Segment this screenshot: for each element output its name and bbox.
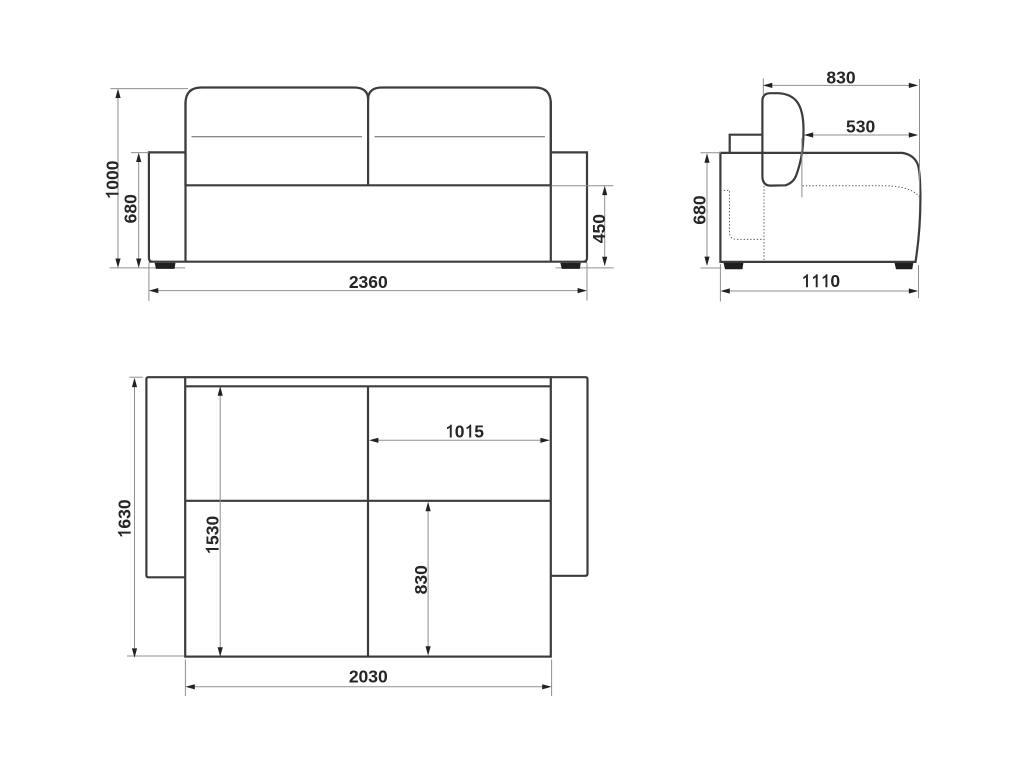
svg-text:2030: 2030 xyxy=(349,666,388,686)
svg-text:0: 0 xyxy=(830,271,840,291)
svg-text:530: 530 xyxy=(846,116,875,136)
svg-text:5: 5 xyxy=(474,422,484,442)
svg-text:680: 680 xyxy=(690,195,710,224)
svg-text:680: 680 xyxy=(120,194,140,223)
svg-text:530: 530 xyxy=(203,516,223,545)
svg-text:450: 450 xyxy=(589,214,609,243)
svg-text:2360: 2360 xyxy=(349,272,388,292)
svg-text:830: 830 xyxy=(411,565,431,594)
svg-text:630: 630 xyxy=(115,499,135,528)
svg-text:000: 000 xyxy=(103,160,123,189)
svg-text:830: 830 xyxy=(826,67,855,87)
svg-text:0: 0 xyxy=(455,422,465,442)
